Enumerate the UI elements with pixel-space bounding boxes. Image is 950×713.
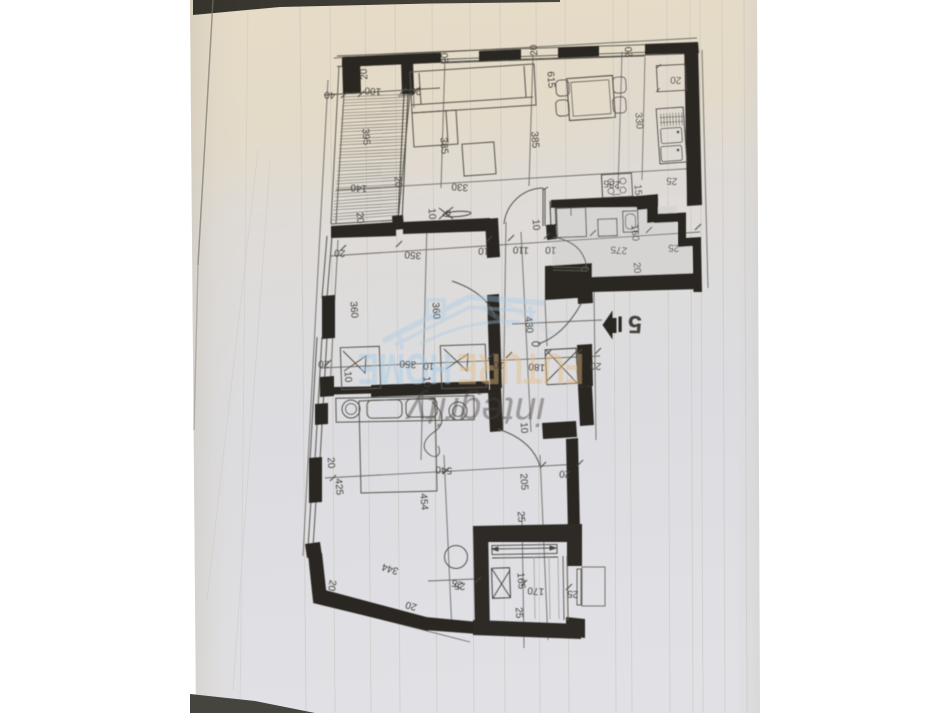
svg-text:20: 20	[409, 85, 421, 97]
svg-text:10: 10	[492, 359, 504, 371]
svg-text:25: 25	[665, 175, 677, 187]
svg-text:350: 350	[404, 248, 422, 260]
svg-text:20: 20	[333, 247, 345, 259]
svg-text:25: 25	[566, 588, 578, 600]
svg-text:110: 110	[512, 243, 529, 255]
svg-text:10: 10	[518, 422, 530, 434]
svg-text:25: 25	[513, 607, 525, 619]
svg-text:205: 205	[517, 473, 529, 491]
svg-text:350: 350	[399, 357, 417, 369]
svg-text:20: 20	[558, 468, 570, 480]
svg-text:615: 615	[544, 71, 556, 89]
svg-text:360: 360	[429, 302, 441, 320]
svg-text:425: 425	[332, 478, 344, 496]
svg-text:385: 385	[528, 131, 540, 149]
svg-text:20: 20	[624, 46, 636, 58]
svg-text:330: 330	[451, 180, 469, 192]
svg-text:20: 20	[354, 212, 366, 224]
svg-text:180: 180	[528, 360, 546, 372]
svg-text:170: 170	[527, 584, 545, 596]
svg-text:20: 20	[325, 579, 338, 592]
svg-text:10: 10	[544, 244, 556, 256]
svg-text:20: 20	[359, 68, 371, 80]
svg-text:10: 10	[426, 208, 438, 220]
svg-text:430: 430	[522, 316, 534, 334]
svg-text:10: 10	[342, 371, 354, 383]
svg-text:40: 40	[323, 89, 335, 101]
svg-text:385: 385	[437, 137, 449, 155]
svg-text:20: 20	[529, 44, 541, 56]
svg-text:20: 20	[317, 358, 329, 370]
svg-text:20: 20	[440, 52, 452, 64]
svg-text:20: 20	[589, 360, 601, 372]
svg-text:25: 25	[667, 242, 679, 254]
svg-text:275: 275	[610, 243, 628, 255]
svg-text:140: 140	[350, 181, 368, 193]
svg-text:10: 10	[421, 376, 433, 388]
svg-text:20: 20	[325, 457, 337, 469]
svg-text:20: 20	[392, 176, 404, 188]
svg-text:15: 15	[632, 184, 644, 196]
svg-text:454: 454	[417, 493, 429, 511]
svg-text:25: 25	[515, 511, 527, 523]
svg-text:540: 540	[435, 463, 453, 475]
svg-text:285: 285	[603, 177, 621, 189]
svg-text:10: 10	[530, 219, 542, 231]
svg-text:20: 20	[631, 262, 643, 274]
svg-text:165: 165	[514, 572, 526, 590]
svg-text:160: 160	[628, 224, 640, 242]
svg-text:360: 360	[347, 301, 359, 319]
svg-text:25: 25	[453, 580, 465, 592]
svg-text:5: 5	[628, 310, 642, 338]
svg-text:20: 20	[669, 74, 681, 86]
svg-text:395: 395	[359, 128, 371, 146]
svg-text:10: 10	[477, 245, 489, 257]
svg-text:330: 330	[632, 112, 644, 130]
svg-text:10: 10	[422, 360, 434, 372]
svg-text:100: 100	[364, 84, 382, 96]
